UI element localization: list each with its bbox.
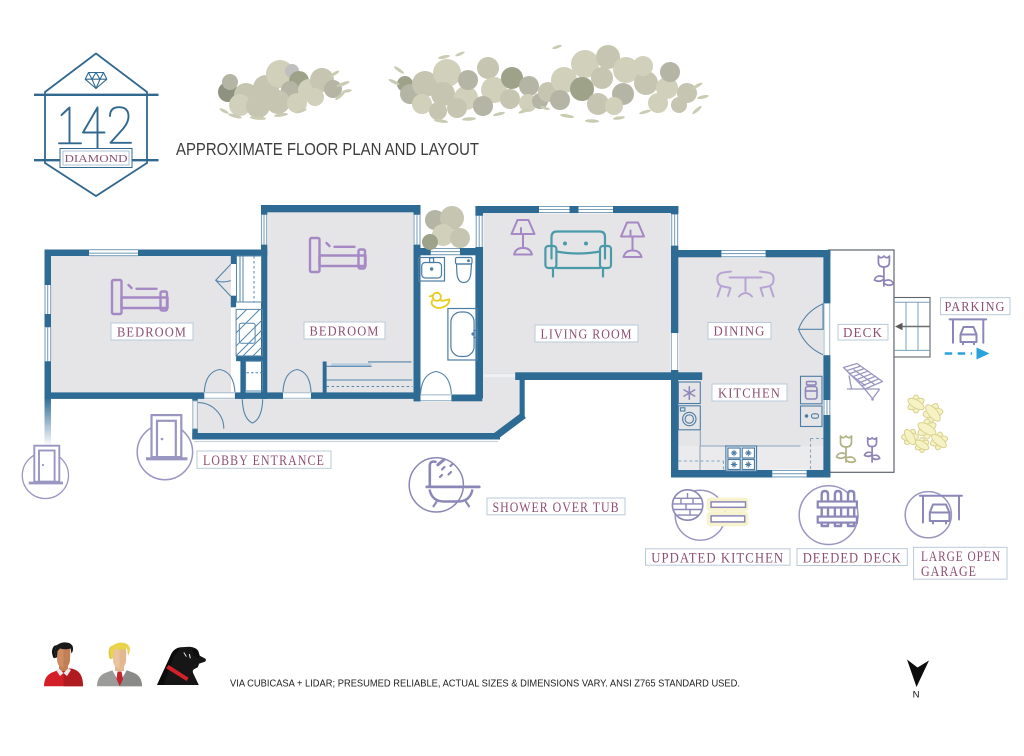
- svg-text:APPROXIMATE FLOOR PLAN AND LAY: APPROXIMATE FLOOR PLAN AND LAYOUT: [176, 139, 479, 159]
- svg-text:UPDATED KITCHEN: UPDATED KITCHEN: [651, 550, 784, 566]
- svg-text:GARAGE: GARAGE: [921, 564, 977, 580]
- svg-text:DEEDED DECK: DEEDED DECK: [803, 551, 902, 567]
- svg-text:N: N: [913, 690, 920, 701]
- svg-text:PARKING: PARKING: [945, 300, 1006, 315]
- svg-text:VIA CUBICASA + LIDAR; PRESUMED: VIA CUBICASA + LIDAR; PRESUMED RELIABLE,…: [230, 679, 740, 690]
- svg-text:LOBBY ENTRANCE: LOBBY ENTRANCE: [203, 453, 325, 469]
- svg-text:LIVING ROOM: LIVING ROOM: [541, 328, 633, 343]
- svg-text:SHOWER OVER TUB: SHOWER OVER TUB: [493, 500, 620, 516]
- svg-text:DECK: DECK: [843, 326, 883, 341]
- svg-text:KITCHEN: KITCHEN: [718, 387, 781, 402]
- svg-text:BEDROOM: BEDROOM: [310, 325, 380, 340]
- svg-text:LARGE OPEN: LARGE OPEN: [921, 549, 1001, 565]
- svg-text:DIAMOND: DIAMOND: [65, 153, 128, 165]
- svg-text:DINING: DINING: [714, 325, 766, 340]
- svg-text:BEDROOM: BEDROOM: [117, 326, 187, 341]
